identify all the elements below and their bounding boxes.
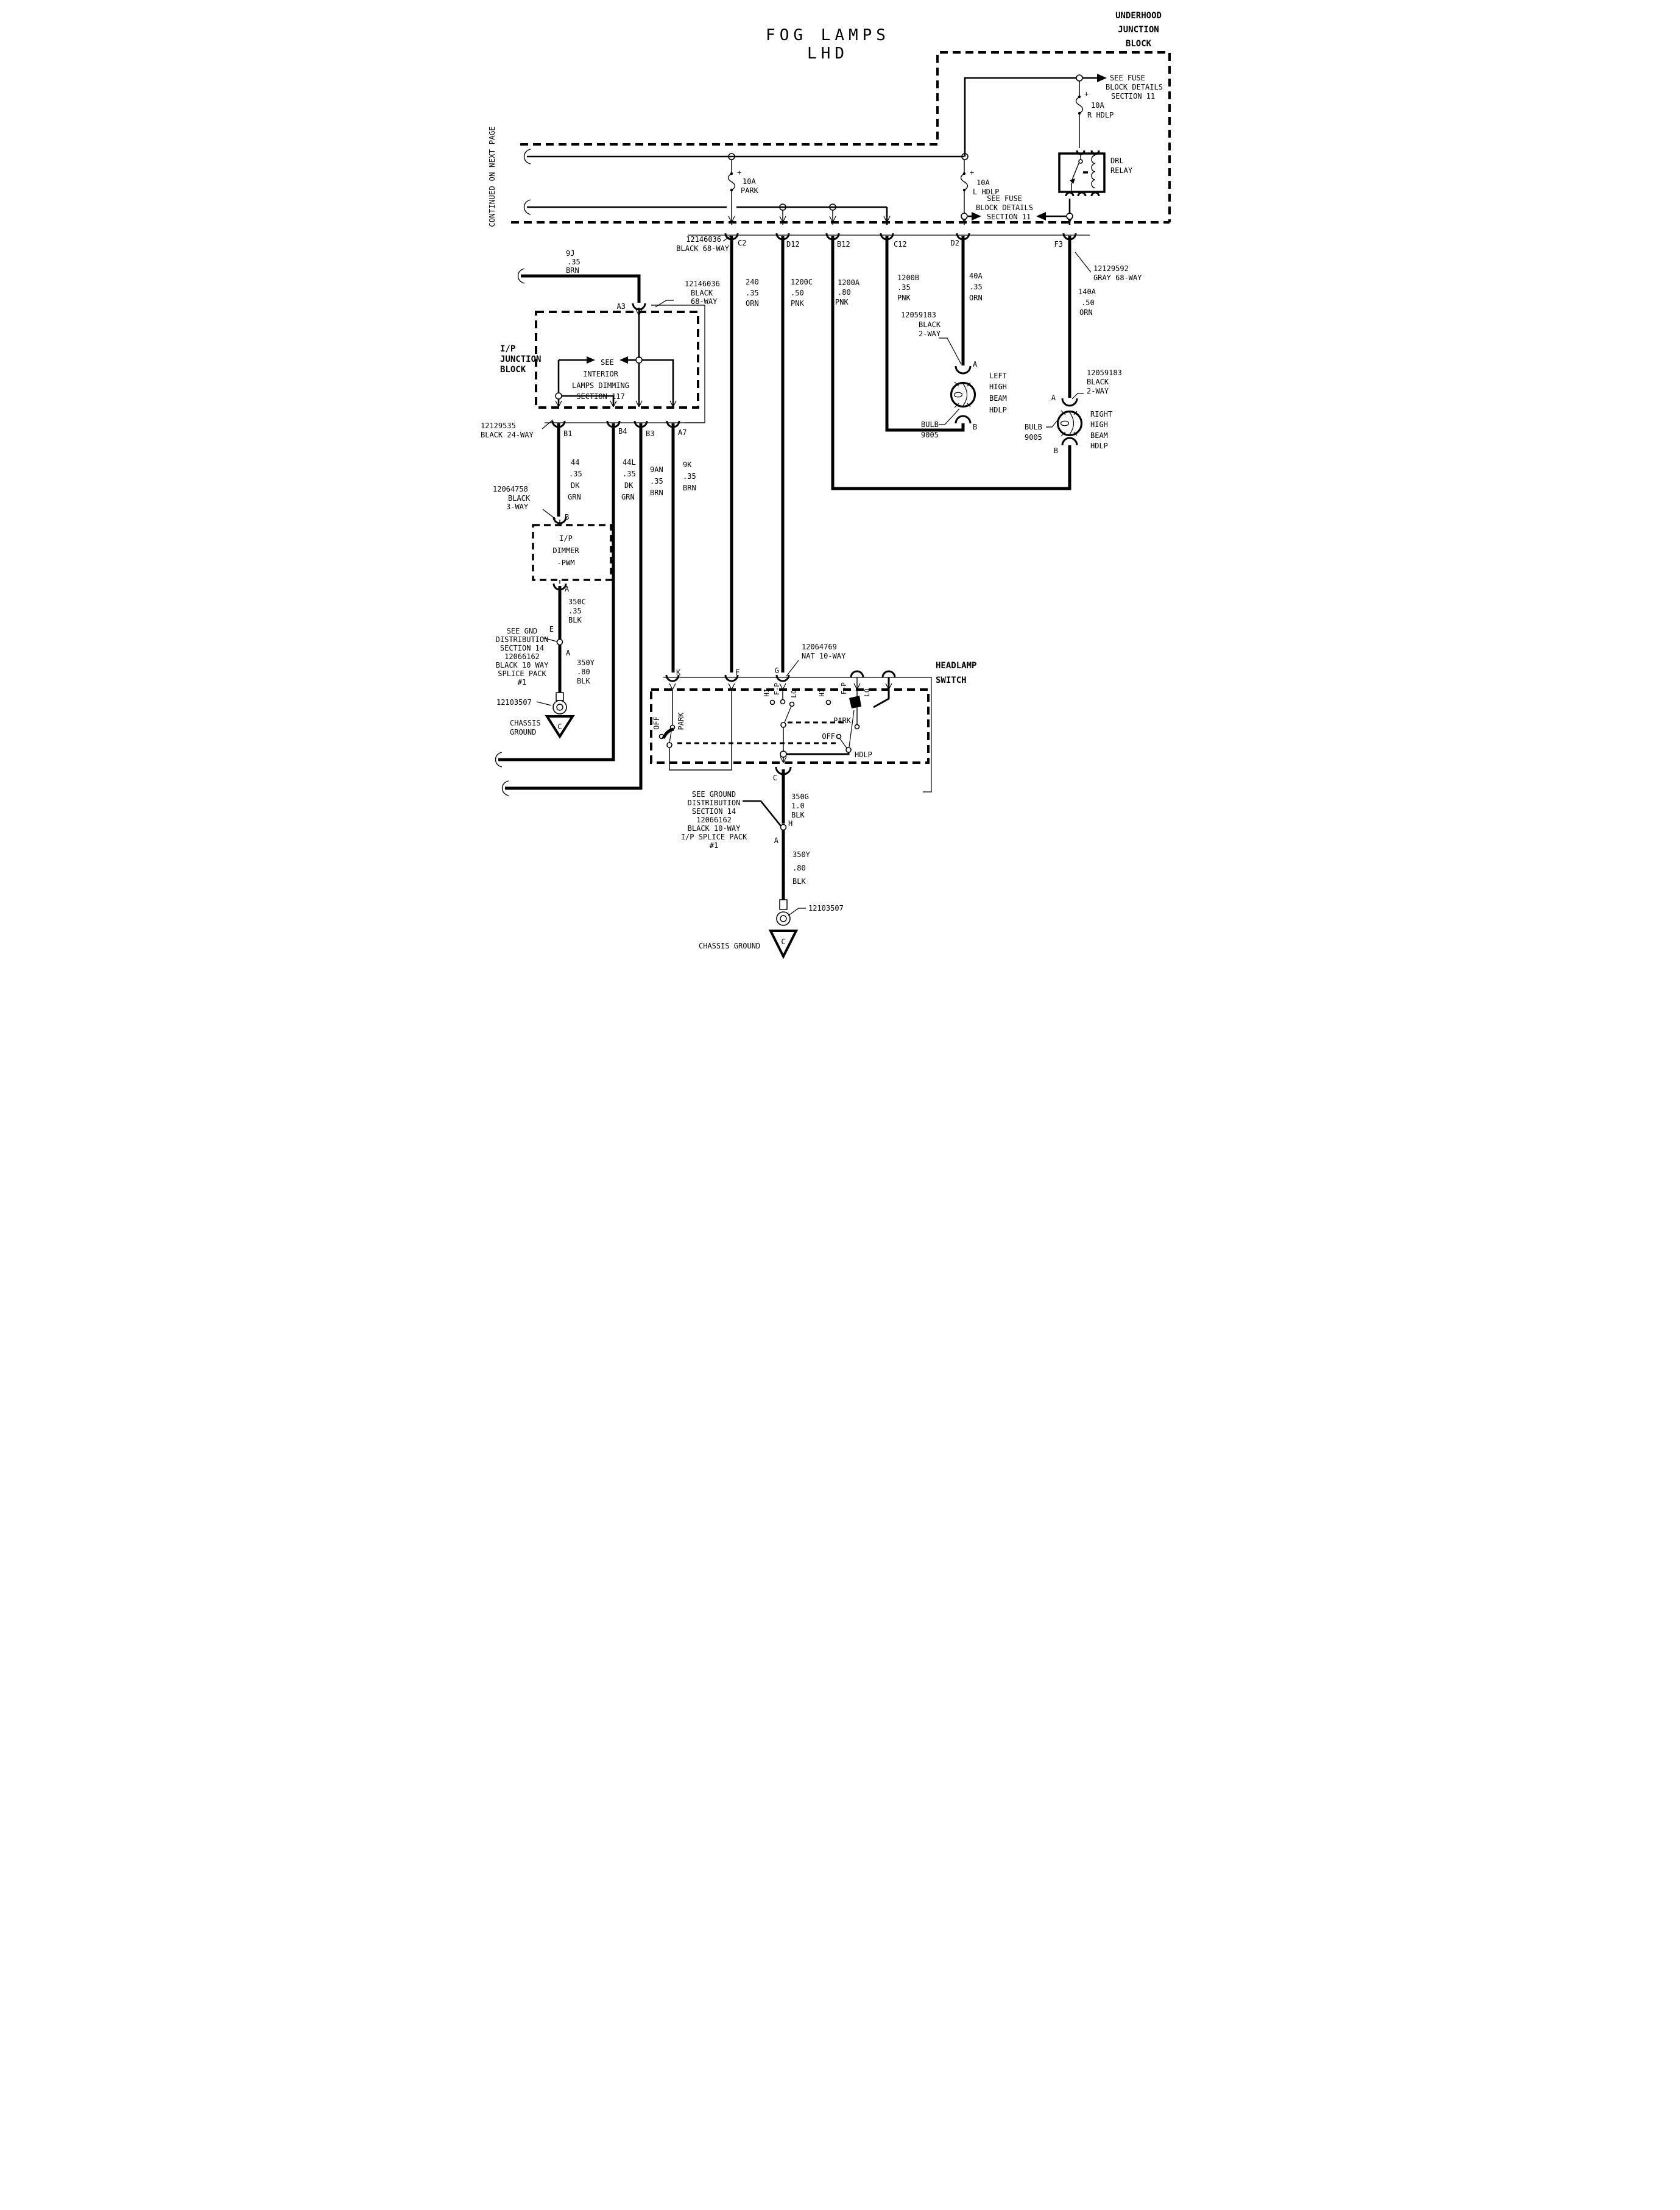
- wire-label: 1200C: [791, 278, 813, 286]
- boundary-arrows: [556, 401, 676, 407]
- connector-arc-icon: [1062, 398, 1077, 406]
- ground-c: C: [557, 722, 562, 731]
- continued-note: CONTINUED ON NEXT PAGE: [487, 126, 496, 227]
- see-interior-2: INTERIOR: [583, 370, 619, 378]
- bulb-label-1: BULB: [1025, 423, 1042, 431]
- wire-label: .35: [569, 470, 582, 478]
- diagram-title: FOG LAMPS LHD: [766, 26, 890, 63]
- connector-arc-icon: [956, 366, 970, 373]
- gnd-note: SEE GND: [507, 627, 538, 635]
- lamp-name-4: HDLP: [1090, 442, 1108, 450]
- relay-switch-blade: [1072, 163, 1079, 180]
- wire-label: .35: [897, 283, 911, 292]
- fp2-label: F-P: [840, 682, 848, 694]
- ring-part-number: 12103507: [496, 698, 532, 707]
- title-line1: FOG LAMPS: [766, 26, 890, 44]
- lamp-conn-1: 12059183: [1087, 369, 1122, 377]
- dimmer-conn-label-2: BLACK: [508, 494, 531, 503]
- pin-b4: B4: [618, 427, 627, 436]
- filament-icon: [955, 392, 962, 397]
- conn-label-right-1: 12129592: [1093, 264, 1129, 273]
- label-pointer: [939, 338, 961, 364]
- wire-label: .50: [1081, 298, 1095, 307]
- wire-label: GRN: [568, 493, 581, 501]
- see-fuse-mid-3: SECTION 11: [987, 213, 1031, 221]
- lamp-name-4: HDLP: [989, 406, 1007, 414]
- wire-label: 350Y: [792, 850, 811, 859]
- junction-dot: [1076, 75, 1082, 81]
- hi-contact: [771, 701, 775, 705]
- switch-label-1: HEADLAMP: [936, 661, 976, 671]
- park-label: PARK: [677, 712, 685, 730]
- wire-label: ORN: [1079, 308, 1093, 317]
- fuse-icon: [1076, 97, 1083, 113]
- wire-label: 9K: [683, 461, 692, 469]
- wire-label: BLK: [577, 677, 590, 685]
- hi2-label: HI: [818, 688, 826, 696]
- dimmer-box-label-2: DIMMER: [552, 546, 579, 555]
- splice-dot: [557, 640, 563, 645]
- right-high-beam-lamp: 12059183 BLACK 2-WAY A B RIGHT HIGH BEAM…: [1025, 369, 1122, 455]
- fuse-amp: 10A: [743, 177, 756, 186]
- connector-arc-icon: [1078, 192, 1085, 196]
- harness-wires: [732, 244, 1070, 673]
- headlamp-switch: 12064769 NAT 10-WAY K F G HEADLAMP SWITC…: [651, 643, 976, 792]
- rhdlp-feed-wire: [965, 78, 1076, 157]
- lamp-name-1: LEFT: [989, 372, 1007, 380]
- wire-label: 140A: [1078, 288, 1096, 296]
- wire-label: BRN: [566, 266, 579, 275]
- wire-label: ORN: [969, 294, 983, 302]
- lamp-conn-2: BLACK: [919, 320, 941, 329]
- lo2-label: LO: [863, 688, 871, 696]
- wiring-diagram-page: FOG LAMPS LHD CONTINUED ON NEXT PAGE UND…: [475, 0, 1205, 962]
- pin-a3: A3: [617, 302, 626, 311]
- bulb-icon: [1058, 412, 1082, 436]
- lamp-name-2: HIGH: [1090, 420, 1108, 429]
- ring-terminal-hole: [557, 704, 563, 710]
- fuse-plus: +: [737, 168, 741, 177]
- ring-terminal-stub: [556, 693, 563, 701]
- chassis-ground-label: CHASSIS GROUND: [699, 942, 760, 950]
- wire-label: BRN: [683, 484, 696, 492]
- gnd-note: DISTRIBUTION: [496, 635, 549, 644]
- ring-terminal-stub: [780, 900, 787, 909]
- dimmer-box-label-3: -PWM: [557, 559, 575, 567]
- label-pointer: [1075, 252, 1091, 272]
- bulb-label-1: BULB: [921, 420, 939, 429]
- gnd-note: 12066162: [696, 816, 732, 824]
- pin-a7: A7: [678, 428, 686, 437]
- fp2-blade: [849, 696, 861, 708]
- park2-label: PARK: [833, 716, 852, 725]
- wire-label: 1200A: [838, 278, 860, 287]
- gnd-note: BLACK 10 WAY: [496, 661, 549, 669]
- connector-arc-icon: [1062, 438, 1077, 445]
- switch-pivot: [667, 743, 672, 747]
- gnd-note: SEE GROUND: [692, 790, 736, 799]
- splice-e: E: [549, 625, 554, 634]
- wire-label: .35: [567, 258, 581, 266]
- label-pointer: [743, 801, 781, 826]
- dimmer-pivot: [781, 722, 786, 727]
- see-interior-4: SECTION 117: [576, 392, 624, 401]
- label-pointer: [537, 702, 551, 705]
- pin-g: G: [775, 666, 779, 675]
- wire-label: .35: [568, 607, 582, 615]
- splice-dot: [781, 825, 786, 830]
- lamp-name-1: RIGHT: [1090, 410, 1112, 418]
- see-fuse-ref-mid: SEE FUSE BLOCK DETAILS SECTION 11: [968, 194, 1066, 221]
- wire-label: 1200B: [897, 274, 919, 282]
- fp-contact: [781, 700, 785, 704]
- wire-label: PNK: [897, 294, 911, 302]
- ipjb-label-1: I/P: [500, 344, 515, 354]
- arrow-left-icon: [1036, 212, 1046, 221]
- see-interior-1: SEE: [601, 358, 614, 367]
- splice-a: A: [774, 836, 779, 845]
- conn-24way-label-1: 12129535: [481, 422, 516, 430]
- relay-label-1: DRL: [1110, 157, 1124, 165]
- switch-blade: [663, 729, 674, 738]
- lamp-pin-a: A: [973, 360, 978, 369]
- splice-a: A: [566, 649, 571, 657]
- chassis-ground-label-1: CHASSIS: [510, 719, 541, 727]
- gnd-note: SECTION 14: [692, 807, 736, 816]
- uhjb-label-2: JUNCTION: [1118, 25, 1159, 35]
- see-fuse-top-3: SECTION 11: [1111, 92, 1155, 101]
- ring-terminal-icon: [777, 912, 790, 925]
- see-fuse-ref-top: SEE FUSE BLOCK DETAILS SECTION 11: [1082, 74, 1163, 101]
- pin-f: F: [735, 668, 739, 677]
- fuse-plus: +: [1084, 90, 1089, 98]
- lo-label: LO: [790, 690, 798, 697]
- lo-contact: [790, 702, 794, 707]
- arrow-right-icon: [972, 212, 981, 221]
- pin-a: A: [565, 585, 570, 593]
- off2-label: OFF: [822, 732, 835, 741]
- wire-label: GRN: [621, 493, 635, 501]
- arrow-left-icon: [619, 356, 628, 364]
- chassis-ground-label-2: GROUND: [510, 728, 536, 736]
- off-label: OFF: [652, 716, 661, 730]
- label-pointer: [788, 908, 806, 916]
- wire-labels: 240 .35 ORN 1200C .50 PNK 1200A .80 PNK …: [746, 272, 1096, 317]
- hdlp-pivot: [846, 747, 851, 752]
- gnd-note: SECTION 14: [500, 644, 544, 652]
- see-interior-3: LAMPS DIMMING: [572, 381, 629, 390]
- label-pointer: [542, 420, 553, 429]
- wire-label: PNK: [835, 298, 849, 306]
- wire-label: 350Y: [577, 658, 595, 667]
- see-fuse-top-2: BLOCK DETAILS: [1106, 83, 1163, 91]
- lamp-conn-3: 2-WAY: [1087, 387, 1109, 395]
- wire-label: 40A: [969, 272, 983, 280]
- ip-connector-row: B1 B4 B3 A7 12129535 BLACK 24-WAY: [481, 420, 705, 439]
- wire-label: DK: [571, 481, 580, 490]
- fuse-amp: 10A: [976, 178, 990, 187]
- conn-label-top-2: BLACK 68-WAY: [676, 244, 729, 253]
- ring-part-number: 12103507: [808, 904, 844, 913]
- wire-label: .50: [791, 289, 804, 297]
- uhjb-label-1: UNDERHOOD: [1115, 11, 1162, 21]
- lamp-name-2: HIGH: [989, 383, 1007, 391]
- wire-label: DK: [624, 481, 634, 490]
- left-ground-column: 350C .35 BLK E SEE GND DISTRIBUTION SECT…: [496, 586, 595, 736]
- wire-label: .80: [792, 864, 806, 872]
- relay-coil-icon: [1092, 155, 1095, 188]
- bottom-ground-column: C 350G 1.0 BLK SEE GROUND DISTRIBUTION S…: [681, 767, 844, 956]
- see-fuse-mid-1: SEE FUSE: [987, 194, 1022, 203]
- left-high-beam-lamp: 12059183 BLACK 2-WAY A B LEFT HIGH BEAM …: [901, 311, 1007, 439]
- pin-d12: D12: [786, 240, 800, 249]
- junction-dot: [556, 393, 562, 399]
- bulb-label-2: 9005: [1025, 433, 1042, 442]
- pin-c: C: [773, 774, 777, 782]
- gnd-note: #1: [518, 678, 526, 687]
- fuse-icon: [729, 174, 735, 190]
- conn-a3-label-1: 12146036: [685, 280, 720, 288]
- pin-c2: C2: [738, 239, 746, 247]
- hdlp-label: HDLP: [855, 750, 872, 759]
- pin-f3: F3: [1054, 240, 1063, 249]
- wire-label: BLK: [568, 616, 582, 624]
- relay-label-2: RELAY: [1110, 166, 1133, 175]
- drl-relay: DRL RELAY: [1059, 150, 1133, 225]
- pin-b: B: [565, 513, 569, 521]
- uhjb-label-3: BLOCK: [1126, 39, 1152, 49]
- wire-label: 9AN: [650, 465, 663, 474]
- dimmer-conn-label-3: 3-WAY: [506, 503, 529, 511]
- pin-b1: B1: [563, 429, 572, 438]
- wire-label: 1.0: [791, 802, 805, 810]
- label-pointer: [655, 300, 674, 307]
- see-fuse-top-1: SEE FUSE: [1110, 74, 1145, 82]
- wire-label: 9J: [566, 249, 574, 258]
- park2-contact: [855, 725, 859, 729]
- ring-terminal-icon: [553, 701, 566, 714]
- relay-box: [1059, 154, 1104, 192]
- pin-b3: B3: [646, 429, 654, 438]
- connector-bracket: [685, 305, 705, 423]
- connector-arc-icon: [956, 416, 970, 423]
- gnd-note: DISTRIBUTION: [688, 799, 741, 807]
- wire-label: BLK: [792, 877, 806, 886]
- fuse-icon: [961, 174, 968, 190]
- ring-terminal-hole: [780, 916, 786, 922]
- hi-label: HI: [763, 688, 771, 696]
- conn-label-top-1: 12146036: [686, 235, 721, 244]
- conn-a3-label-2: BLACK: [691, 289, 713, 297]
- wire-label: PNK: [791, 299, 804, 308]
- wire-1200a-pnk: [833, 244, 1070, 489]
- pin-d2: D2: [951, 239, 959, 247]
- dimmer-box-label-1: I/P: [559, 534, 573, 543]
- switch-label-2: SWITCH: [936, 676, 967, 685]
- wire-label: ORN: [746, 299, 759, 308]
- see-fuse-mid-2: BLOCK DETAILS: [976, 203, 1033, 212]
- wire-label: 44: [571, 458, 579, 467]
- label-pointer: [786, 660, 799, 676]
- wire-44l-dkgrn: [498, 434, 613, 760]
- conn-24way-label-2: BLACK 24-WAY: [481, 431, 534, 439]
- wire-label: .35: [650, 477, 663, 485]
- wire-label: .80: [838, 288, 851, 297]
- gnd-note: I/P SPLICE PACK: [681, 833, 747, 841]
- ipjb-label-3: BLOCK: [500, 365, 526, 375]
- arrow-right-icon: [587, 356, 595, 364]
- pin-c12: C12: [894, 240, 907, 249]
- lamp-pin-b: B: [973, 423, 977, 431]
- wire-label: .35: [683, 472, 696, 481]
- wire-label: .35: [969, 283, 983, 291]
- splice-h: H: [788, 819, 792, 828]
- title-line2: LHD: [807, 44, 849, 63]
- lamp-pin-b: B: [1054, 447, 1058, 455]
- gnd-note: SPLICE PACK: [498, 669, 546, 678]
- gnd-note: BLACK 10-WAY: [688, 824, 741, 833]
- lamp-pin-a: A: [1051, 394, 1056, 402]
- off2-contact: [837, 735, 841, 739]
- fuse-plus: +: [970, 168, 974, 177]
- connector-arc-icon: [1092, 192, 1099, 196]
- pin-b12: B12: [837, 240, 850, 249]
- ground-c: C: [781, 937, 785, 946]
- wire-label: 350G: [791, 793, 809, 801]
- wire-label: 240: [746, 278, 759, 286]
- conn-label-right-2: GRAY 68-WAY: [1093, 274, 1142, 282]
- ip-junction-block: I/P JUNCTION BLOCK SEE INTERIOR LAMPS DI…: [500, 308, 698, 408]
- bulb-icon: [951, 383, 975, 407]
- gnd-note: #1: [710, 841, 718, 850]
- lamp-conn-3: 2-WAY: [919, 330, 941, 338]
- wire-label: 350C: [568, 598, 586, 606]
- wire-label: 44L: [623, 458, 636, 467]
- a7-branch: [642, 360, 673, 406]
- lamp-name-3: BEAM: [989, 394, 1007, 403]
- conn-a3-label-3: 68-WAY: [691, 297, 718, 306]
- wire-label: .35: [623, 470, 636, 478]
- label-pointer: [1072, 394, 1084, 399]
- junction-dot: [780, 751, 786, 757]
- fp-label: F-P: [773, 683, 781, 695]
- fuse-amp: 10A: [1091, 101, 1104, 110]
- lamp-name-3: BEAM: [1090, 431, 1108, 440]
- hi2-contact: [827, 701, 831, 705]
- fuse-name: PARK: [741, 186, 759, 195]
- wire-label: .35: [746, 289, 759, 297]
- fuse-name: R HDLP: [1087, 111, 1114, 119]
- connector-arc-icon: [1066, 192, 1073, 196]
- switch-rail: [786, 752, 849, 754]
- gnd-note: 12066162: [504, 652, 540, 661]
- wire-label: BLK: [791, 811, 805, 819]
- fuse-park: + 10A PARK: [729, 160, 759, 225]
- wire-label: BRN: [650, 489, 663, 497]
- bulb-label-2: 9005: [921, 431, 939, 439]
- ip-dimmer-module: 12064758 BLACK 3-WAY B I/P DIMMER -PWM A: [493, 485, 611, 593]
- lamp-conn-1: 12059183: [901, 311, 936, 319]
- wire-label: .80: [577, 668, 590, 676]
- lo2-wire: [874, 677, 889, 707]
- arrow-right-icon: [1097, 74, 1107, 82]
- switch-conn-label-2: NAT 10-WAY: [802, 652, 846, 660]
- filament-icon: [1061, 421, 1069, 426]
- pin-k: K: [676, 668, 681, 677]
- dimmer-conn-label-1: 12064758: [493, 485, 528, 493]
- switch-conn-label-1: 12064769: [802, 643, 837, 651]
- lamp-conn-2: BLACK: [1087, 378, 1109, 386]
